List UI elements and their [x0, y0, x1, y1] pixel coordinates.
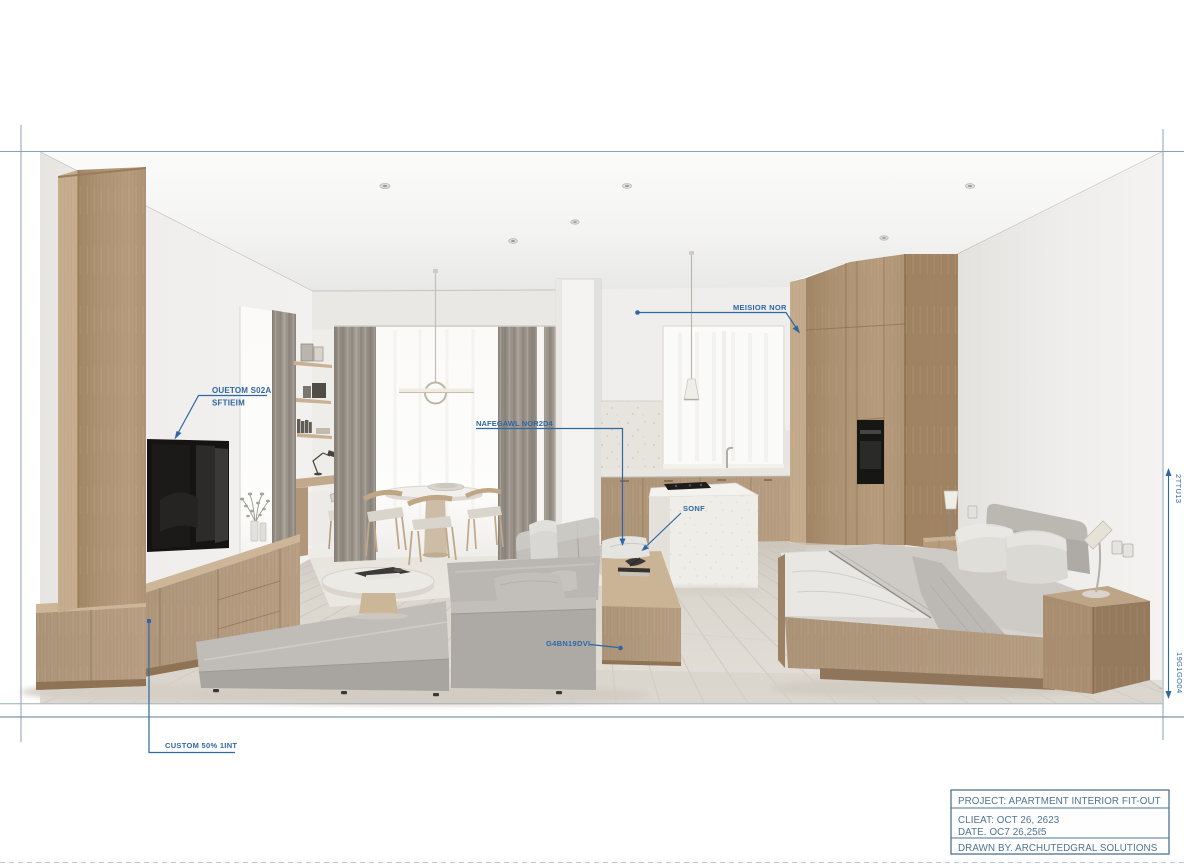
- svg-text:DRAWN BY. ARCHUTEDGRAL SOLUTIO: DRAWN BY. ARCHUTEDGRAL SOLUTIONS: [958, 843, 1158, 854]
- svg-text:19G1GO04: 19G1GO04: [1175, 652, 1184, 694]
- svg-text:DATE. OC7 26,25ℓ5: DATE. OC7 26,25ℓ5: [958, 827, 1047, 838]
- svg-text:SFTIEIM: SFTIEIM: [212, 399, 245, 408]
- svg-text:NAFEGAWL NOR2D4: NAFEGAWL NOR2D4: [476, 419, 554, 428]
- svg-text:SONF: SONF: [683, 504, 705, 513]
- svg-text:MEISIOR NOR: MEISIOR NOR: [733, 303, 787, 312]
- svg-text:PROJECT: APARTMENT INTERIOR FI: PROJECT: APARTMENT INTERIOR FIT-OUT: [958, 796, 1161, 807]
- svg-text:CUSTOM 50% 1INT: CUSTOM 50% 1INT: [165, 741, 237, 750]
- svg-text:CLIEAT: OCT 26, 2623: CLIEAT: OCT 26, 2623: [958, 815, 1060, 826]
- svg-text:2TTU13: 2TTU13: [1174, 474, 1183, 504]
- svg-text:OUETOM S02A: OUETOM S02A: [212, 386, 271, 395]
- svg-text:G4BN19DVI: G4BN19DVI: [546, 639, 590, 648]
